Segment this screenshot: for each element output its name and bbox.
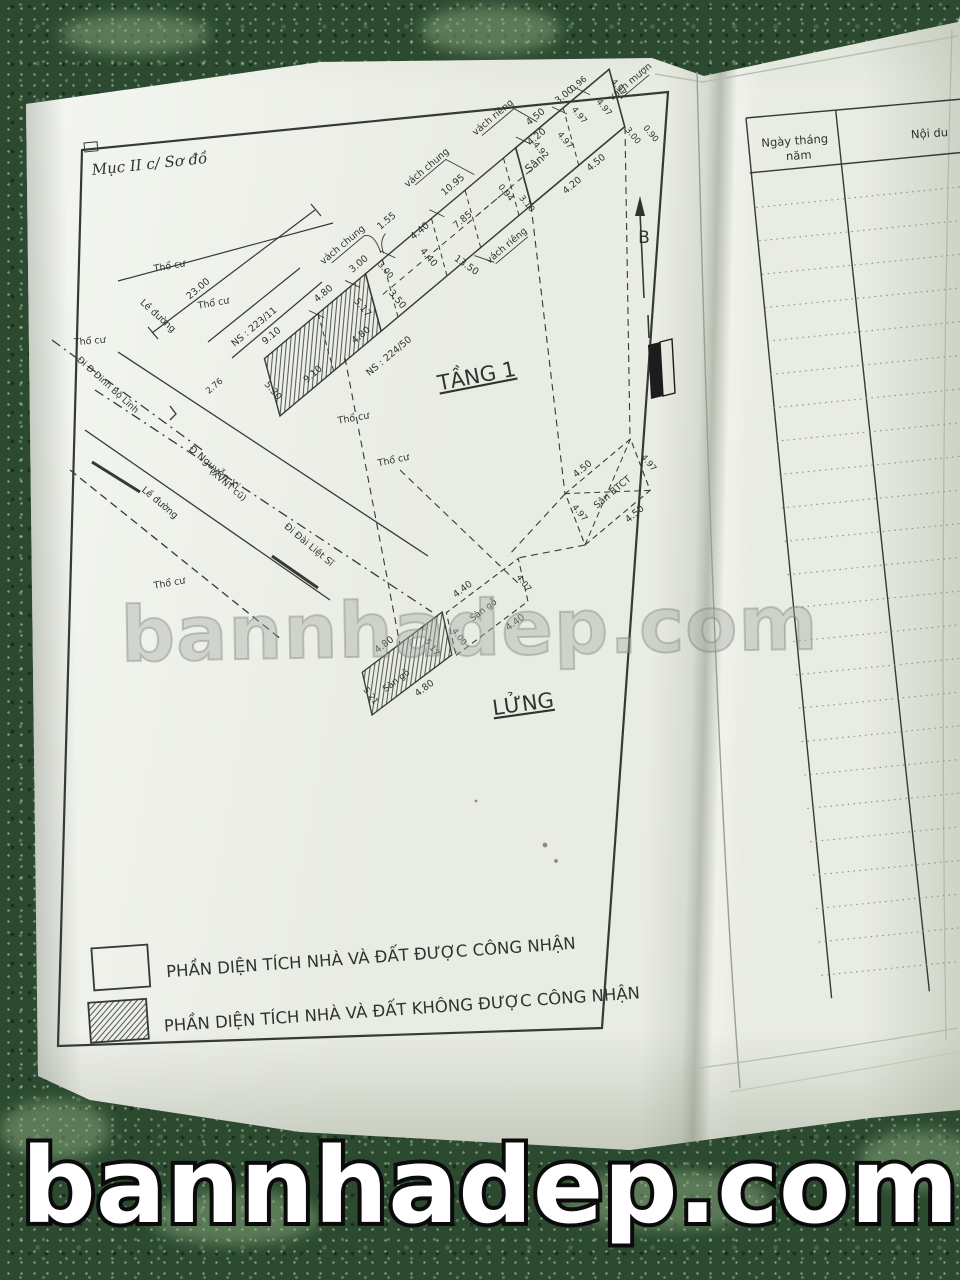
wall-label-rieng: vách riêng xyxy=(470,97,515,138)
dimension-label: 3.10 xyxy=(516,194,536,215)
legend-swatch-plain xyxy=(91,945,150,991)
notebook-row-line xyxy=(784,518,960,541)
north-arrow xyxy=(635,196,675,399)
mezzanine-label: LỬNG xyxy=(491,686,556,720)
legend-swatch-hatched xyxy=(88,999,149,1043)
street-dinh-bo-linh: Đi Đ Đinh Bộ Lĩnh xyxy=(74,354,140,415)
notebook-row-line xyxy=(756,185,960,208)
notebook-row-line xyxy=(787,552,960,575)
legend-label-recognized: PHẦN DIỆN TÍCH NHÀ VÀ ĐẤT ĐƯỢC CÔNG NHẬN xyxy=(165,932,576,982)
street-dai-liet-si: Đi Đài Liệt Sĩ xyxy=(282,521,336,569)
dimension-label: 3.50 xyxy=(386,288,408,311)
legend-label-not-recognized: PHẦN DIỆN TÍCH NHÀ VÀ ĐẤT KHÔNG ĐƯỢC CÔN… xyxy=(163,981,640,1035)
notebook-row-line xyxy=(795,652,960,675)
notebook-row-line xyxy=(781,485,960,508)
notebook-row-line xyxy=(801,719,960,742)
table-header-date-line2: năm xyxy=(786,148,812,164)
notebook-row-line xyxy=(821,952,960,975)
notebook-row-line xyxy=(798,685,960,708)
dimension-label: 13.50 xyxy=(452,253,481,278)
dimension-label: 4.50 xyxy=(623,503,646,525)
notebook-row-line xyxy=(767,318,960,341)
table-header-content: Nội du xyxy=(911,125,949,142)
notebook-row-line xyxy=(770,351,960,374)
dimension-label: 4.50 xyxy=(585,152,608,174)
floor-1-label: TẦNG 1 xyxy=(434,354,518,396)
dimension-label: 0.96 xyxy=(568,74,589,94)
tho-cu-label: Thổ cư xyxy=(336,410,371,427)
tho-cu-label: Thổ cư xyxy=(196,295,231,312)
legend: PHẦN DIỆN TÍCH NHÀ VÀ ĐẤT ĐƯỢC CÔNG NHẬN… xyxy=(84,911,640,1043)
sidewalk-label: Lề đường xyxy=(139,485,180,522)
notebook-row-line xyxy=(810,819,960,842)
notebook-row-line xyxy=(778,452,960,475)
table-header-date-line1: Ngày tháng xyxy=(761,131,829,150)
notebook-row-line xyxy=(818,919,960,942)
dimension-label: 4.97 xyxy=(569,105,589,126)
dimension-label: 4.50 xyxy=(571,458,594,480)
wall-label-chung: vách chung xyxy=(402,146,451,190)
sheet-bottom-edge xyxy=(730,1052,958,1092)
house-number-224-50: NS : 224/50 xyxy=(364,334,414,378)
tho-cu-label: Thổ cư xyxy=(72,335,107,349)
photo-stage: Mục II c/ Sơ đồ xyxy=(0,0,960,1280)
notebook-row-line xyxy=(812,852,960,875)
notebook-row-line xyxy=(761,251,960,274)
dimension-label: 10.95 xyxy=(439,172,467,198)
dimension-label: 9.10 xyxy=(260,325,283,347)
section-title: Mục II c/ Sơ đồ xyxy=(90,149,208,179)
north-label: B xyxy=(638,228,650,248)
wall-label-rieng: vách riêng xyxy=(484,226,529,267)
notebook-row-line xyxy=(804,752,960,775)
notebook-row-line xyxy=(776,418,960,441)
notebook-table: Ngày tháng năm Nội du xyxy=(746,97,960,1000)
watermark-middle: bannhadep.com xyxy=(120,578,819,679)
plan-svg: Mục II c/ Sơ đồ xyxy=(0,0,960,1280)
dimension-label: 4.97 xyxy=(555,130,575,151)
notebook-row-line xyxy=(807,785,960,808)
notebook-row-line xyxy=(764,285,960,308)
paper-specks xyxy=(475,800,558,863)
dimension-label: 2.76 xyxy=(204,377,225,397)
north-flag-outline xyxy=(660,339,675,396)
dimension-label: 4.40 xyxy=(408,220,431,242)
watermark-bottom: bannhadep.com xyxy=(21,1125,958,1247)
sheet-top-edge xyxy=(655,36,958,82)
page-right-curl-line xyxy=(943,30,952,1040)
dimension-label: 0.90 xyxy=(640,123,660,144)
sheet-bottom-edge xyxy=(700,1028,958,1068)
dimension-label: 1.55 xyxy=(375,210,398,232)
notebook-row-line xyxy=(759,218,960,241)
notebook-row-line xyxy=(815,885,960,908)
btct-yard-group: Sân BTCT4.504.974.974.50 xyxy=(543,427,675,556)
tho-cu-label: Thổ cư xyxy=(152,258,187,275)
sanbtct-labels: Sân BTCT4.504.974.974.50 xyxy=(552,427,676,549)
tho-cu-label: Thổ cư xyxy=(376,452,411,470)
dimension-label: 3.00 xyxy=(375,260,395,281)
